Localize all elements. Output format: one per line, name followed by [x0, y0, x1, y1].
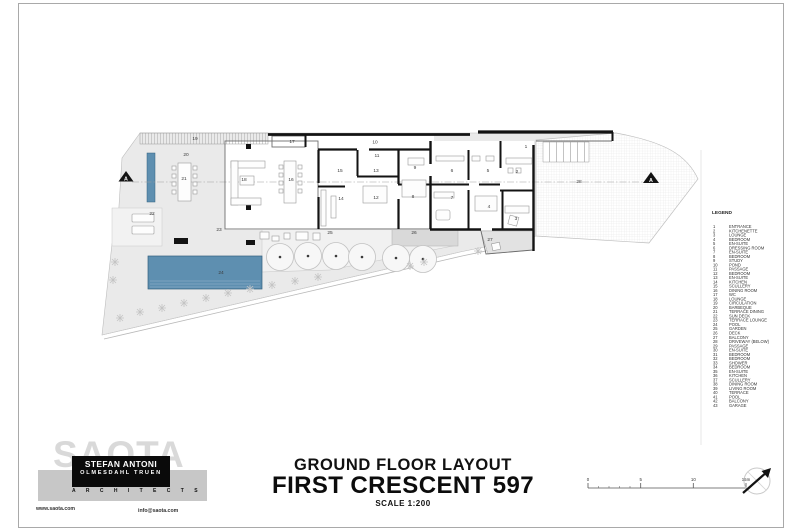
email-text: info@saota.com — [138, 508, 178, 514]
room-number: 26 — [411, 230, 417, 236]
room-number: 25 — [327, 230, 333, 236]
shrub-icon — [116, 314, 124, 322]
room-number: 4 — [488, 204, 491, 210]
water-strip — [147, 153, 155, 202]
project-title: FIRST CRESCENT 597 — [248, 474, 558, 498]
room-number: 3 — [515, 216, 518, 222]
room-number: 24 — [218, 270, 224, 276]
drawing-sheet: A A 123456789101112131415161718192021222… — [0, 0, 800, 530]
scale-bar-labels: 051015m — [587, 477, 751, 482]
room-number: 1 — [525, 144, 528, 150]
shrub-icon — [136, 308, 144, 316]
pergola-strip — [140, 133, 268, 144]
legend-item-label: GARAGE — [729, 403, 747, 408]
shrub-icon — [111, 258, 119, 266]
shrub-icon — [109, 276, 117, 284]
shrub-icon — [158, 304, 166, 312]
room-number: 13 — [373, 168, 379, 174]
room-number: 18 — [241, 177, 247, 183]
shrub-icon — [406, 262, 414, 270]
shrub-icon — [180, 299, 188, 307]
room-number: 12 — [373, 195, 379, 201]
room-number: 16 — [288, 177, 294, 183]
room-number: 8 — [412, 194, 415, 200]
room-number: 6 — [451, 168, 454, 174]
svg-text:A: A — [649, 178, 653, 184]
room-number: 28 — [576, 179, 582, 185]
firm-name-line3: A R C H I T E C T S — [72, 488, 170, 494]
room-number: 17 — [289, 139, 295, 145]
room-number: 22 — [149, 211, 155, 217]
shrub-icon — [314, 273, 322, 281]
firm-name-line1: STEFAN ANTONI — [72, 459, 170, 469]
shrub-icon — [291, 277, 299, 285]
drawing-scale: SCALE 1:200 — [248, 499, 558, 508]
room-number: 11 — [375, 153, 380, 159]
room-number: 10 — [372, 140, 378, 146]
room-number: 19 — [192, 136, 198, 142]
firm-name-line2: OLMESDAHL TRUEN — [72, 470, 170, 476]
scale-tick-label: 10 — [691, 477, 696, 482]
website-text: www.saota.com — [36, 506, 75, 512]
legend: LEGEND 1ENTRANCE2KITCHENETTE3LOUNGE4BEDR… — [712, 210, 770, 408]
room-number: 15 — [337, 168, 343, 174]
room-number: 14 — [338, 196, 344, 202]
room-number: 7 — [451, 195, 454, 201]
shrub-icon — [420, 258, 428, 266]
logo-nameplate: STEFAN ANTONI OLMESDAHL TRUEN — [72, 456, 170, 487]
entrance-stair — [543, 142, 589, 162]
legend-item-number: 43 — [713, 403, 718, 408]
title-block: GROUND FLOOR LAYOUT FIRST CRESCENT 597 S… — [248, 457, 558, 508]
room-number: 21 — [181, 176, 187, 182]
legend-title: LEGEND — [712, 210, 733, 216]
shrub-icon — [474, 247, 482, 255]
scale-tick-label: 15m — [742, 477, 751, 482]
scale-tick-label: 0 — [587, 477, 590, 482]
shrub-icon — [224, 289, 232, 297]
room-number: 2 — [516, 169, 519, 175]
room-number: 5 — [487, 168, 490, 174]
shrub-icon — [246, 285, 254, 293]
room-number: 9 — [414, 165, 417, 171]
shrub-icon — [202, 294, 210, 302]
room-number: 27 — [487, 237, 493, 243]
room-number: 20 — [183, 152, 189, 158]
architect-logo-block: SAOTA STEFAN ANTONI OLMESDAHL TRUEN A R … — [20, 428, 208, 520]
room-number: 23 — [216, 227, 222, 233]
scale-tick-label: 5 — [639, 477, 642, 482]
shrub-icon — [268, 281, 276, 289]
svg-text:A: A — [124, 177, 128, 183]
scale-bar — [588, 483, 746, 488]
